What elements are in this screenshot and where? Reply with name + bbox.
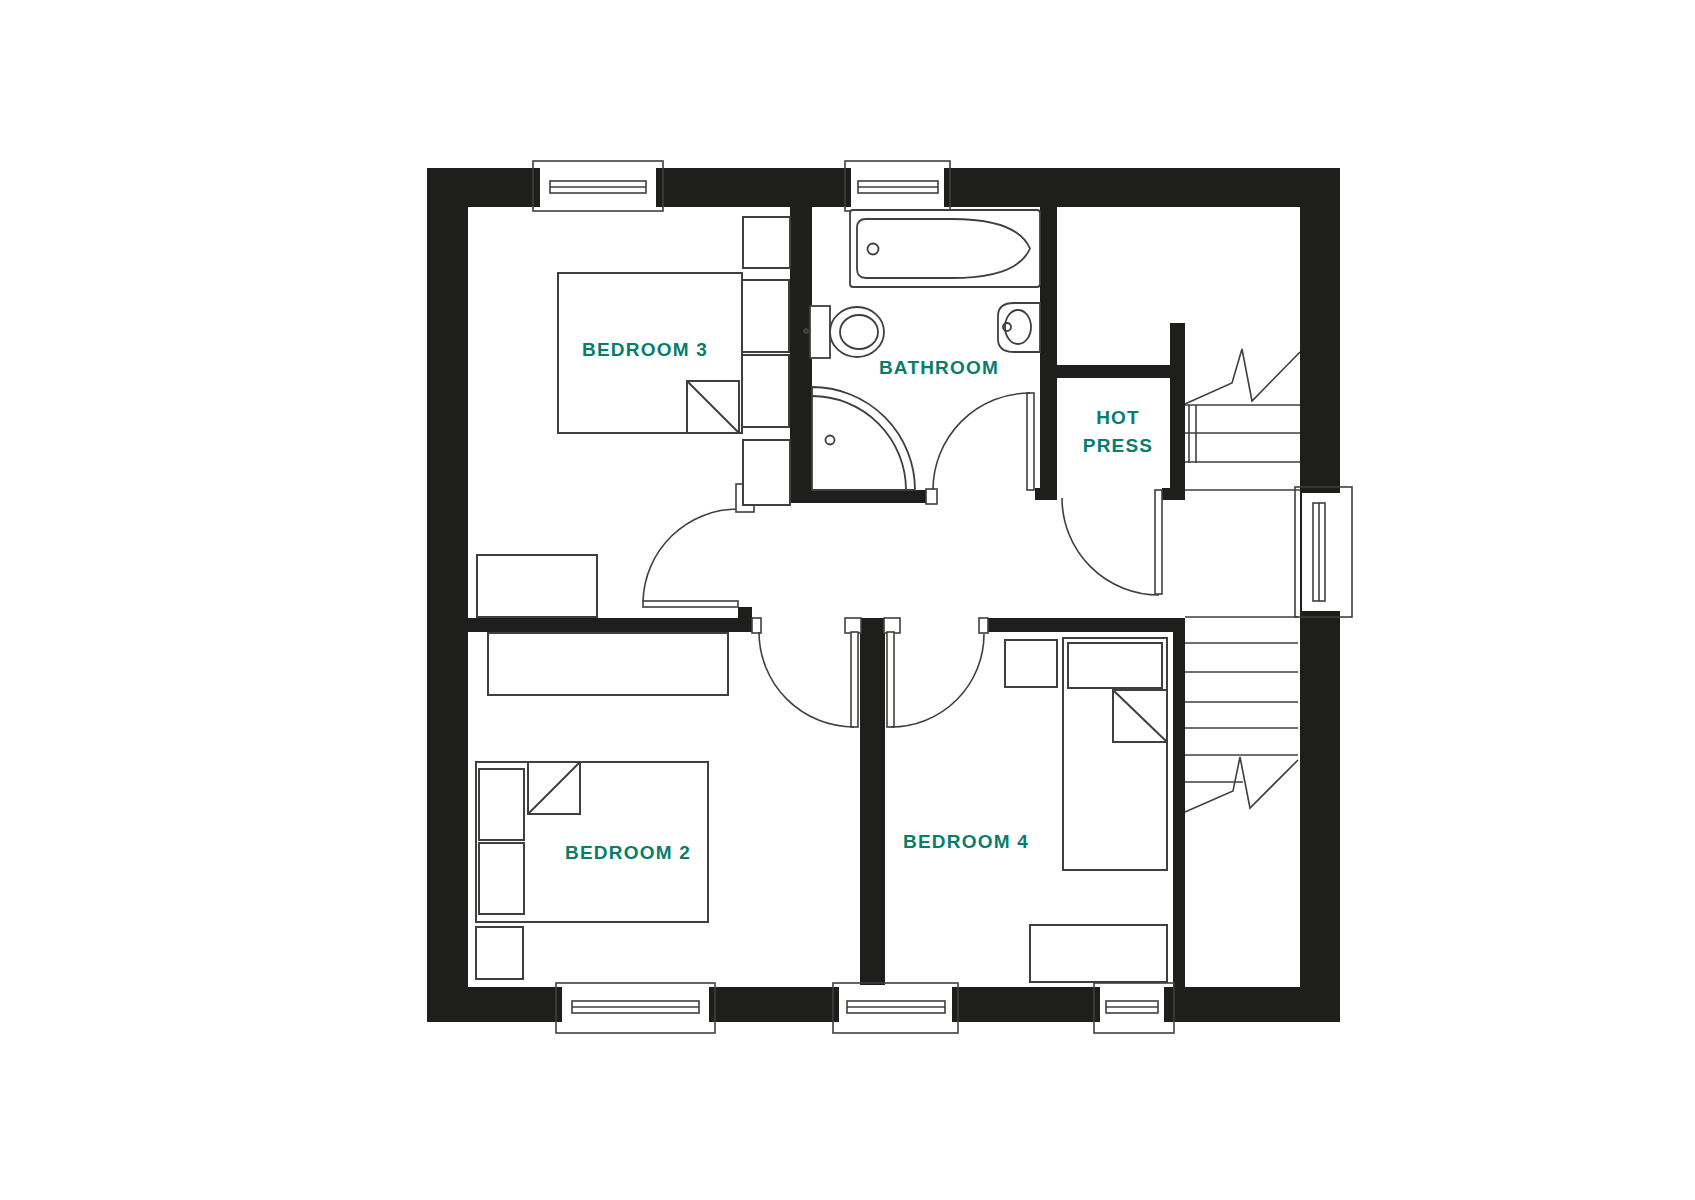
wall-bedroom4-east (1173, 618, 1185, 987)
window-gap-bedroom4 (839, 985, 952, 1024)
label-bedroom4: BEDROOM 4 (903, 831, 1029, 852)
nightstand-bedroom2 (476, 927, 523, 979)
door-bedroom2 (752, 618, 861, 727)
pillow-bedroom2-2 (479, 843, 524, 914)
pillow-bedroom2-1 (479, 769, 524, 840)
door-bedroom4 (884, 618, 988, 727)
label-hot-press-line1: HOT (1096, 407, 1140, 428)
label-bedroom2: BEDROOM 2 (565, 842, 691, 863)
door-arc-bedroom3 (643, 509, 738, 601)
stairs (1185, 349, 1300, 812)
bathtub (850, 210, 1040, 287)
wall-bedroom3-bathroom (790, 207, 812, 503)
shower (812, 387, 915, 490)
nightstand-bedroom4 (1005, 640, 1057, 687)
furniture-bedroom3 (477, 217, 790, 617)
furniture-bedroom4 (1005, 638, 1167, 982)
door-jamb-bedroom2-hinge (845, 618, 861, 633)
door-jamb-bathroom (926, 489, 937, 504)
door-leaf-bedroom4 (887, 632, 894, 727)
nightstand-bedroom3-bottom (743, 440, 790, 505)
desk-bedroom3 (477, 555, 597, 617)
floor-plan-drawing: BEDROOM 3 BATHROOM HOT PRESS BEDROOM 2 B… (0, 0, 1695, 1200)
wall-hotpress-east (1170, 323, 1185, 500)
wall-stub-bathdoor-jamb (1035, 488, 1057, 500)
stairs-break-line-upper (1185, 349, 1300, 404)
bathroom-fixtures (803, 210, 1040, 490)
label-bathroom: BATHROOM (879, 357, 999, 378)
window-gap-bedroom2 (562, 985, 709, 1024)
stairs-break-line-lower (1185, 757, 1298, 812)
dresser-bedroom2 (488, 633, 728, 695)
wall-bedroom3-bedroom2 (468, 618, 752, 632)
window-gap-landing-right (1302, 493, 1344, 611)
pillow-bedroom3-1 (742, 280, 789, 352)
toilet-flush-button (803, 328, 809, 334)
wall-stub-bedroom3-door (738, 607, 752, 618)
stairs-lower-flight (1185, 617, 1298, 812)
stairs-upper-flight (1185, 349, 1300, 490)
wall-bathroom-east (1040, 207, 1057, 500)
door-arc-bedroom2 (759, 632, 854, 727)
wall-bedroom2-bedroom4 (860, 618, 885, 987)
door-leaf-bedroom3 (643, 601, 738, 607)
floor-plan-page: BEDROOM 3 BATHROOM HOT PRESS BEDROOM 2 B… (0, 0, 1695, 1200)
door-arc-bedroom4 (891, 634, 984, 727)
toilet-cistern (810, 306, 830, 358)
pillow-bedroom3-2 (742, 355, 789, 427)
door-jamb-bedroom4-hinge (884, 618, 900, 633)
door-jamb-bedroom4-right (979, 618, 988, 633)
headboard-bedroom4 (1068, 643, 1162, 688)
nightstand-bedroom3-top (743, 217, 790, 268)
door-leaf-bathroom (1027, 393, 1034, 490)
toilet (803, 306, 884, 358)
door-leaf-hot-press (1155, 490, 1162, 594)
sink (998, 303, 1040, 352)
door-hot-press (1062, 490, 1162, 595)
door-arc-bathroom (933, 393, 1030, 490)
door-bedroom3 (643, 484, 754, 607)
label-hot-press-line2: PRESS (1083, 435, 1153, 456)
wall-hotpress-north (1057, 365, 1172, 378)
wall-exterior-left (427, 168, 468, 1022)
door-leaf-bedroom2 (851, 632, 858, 727)
window-gap-stairs (1100, 985, 1164, 1024)
door-jamb-bedroom2-left (752, 618, 761, 633)
wall-stub-hotpress-jamb (1162, 488, 1185, 500)
door-bathroom (926, 393, 1034, 504)
chest-bedroom4 (1030, 925, 1167, 982)
furniture-bedroom2 (476, 633, 728, 979)
wall-bedroom4-north (988, 618, 1185, 632)
label-bedroom3: BEDROOM 3 (582, 339, 708, 360)
door-arc-hot-press (1062, 498, 1159, 595)
